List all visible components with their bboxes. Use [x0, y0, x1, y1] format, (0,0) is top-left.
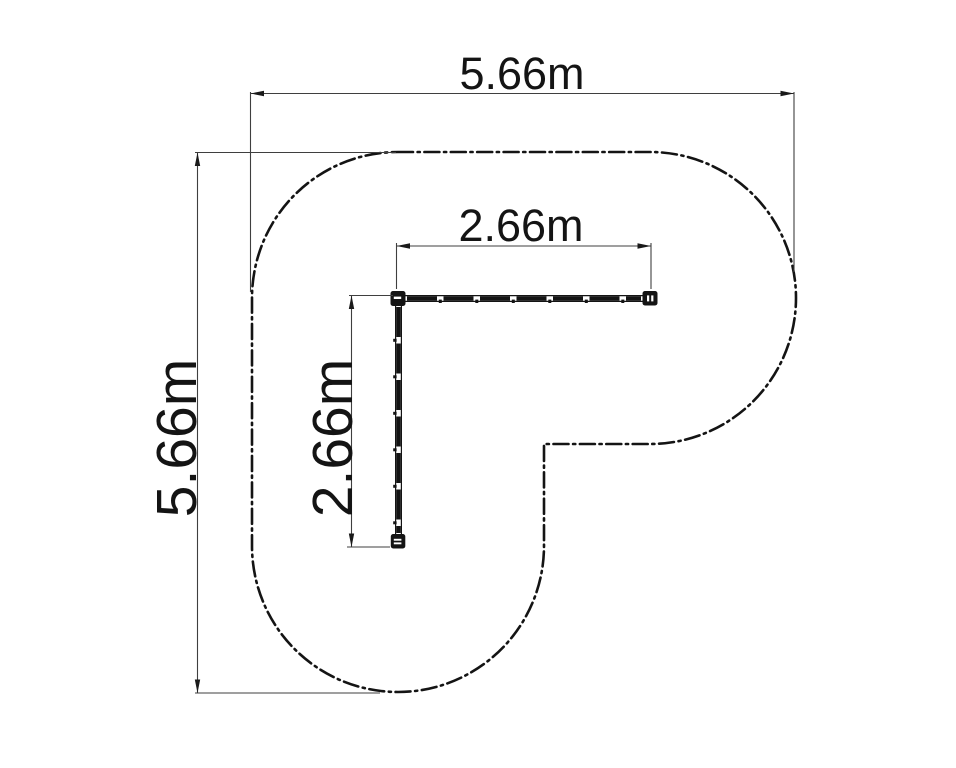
l-shaped-rail	[391, 291, 658, 549]
arrowhead-up	[349, 296, 354, 310]
dimension-label-overall-width: 5.66m	[459, 48, 584, 99]
dimension-label-rail-side: 2.66m	[301, 359, 365, 517]
arrowhead-right	[781, 91, 795, 96]
cad-drawing-page: 5.66m 5.66m 2.66m 2.66m	[0, 0, 956, 768]
arrowhead-up	[195, 153, 200, 167]
dimension-label-overall-height: 5.66m	[145, 359, 209, 517]
arrowhead-left	[251, 91, 265, 96]
arrowhead-down	[349, 534, 354, 548]
dimension-label-rail-top: 2.66m	[458, 200, 583, 251]
arrowhead-right	[638, 243, 652, 248]
dimension-overall-width	[251, 91, 795, 292]
dimension-overall-height	[195, 153, 396, 694]
right-end-post	[643, 291, 658, 306]
dimensioned-plan-drawing: 5.66m 5.66m 2.66m 2.66m	[0, 0, 956, 768]
corner-post	[391, 291, 406, 306]
arrowhead-left	[397, 243, 411, 248]
bottom-end-post	[391, 534, 406, 549]
arrowhead-down	[195, 680, 200, 694]
